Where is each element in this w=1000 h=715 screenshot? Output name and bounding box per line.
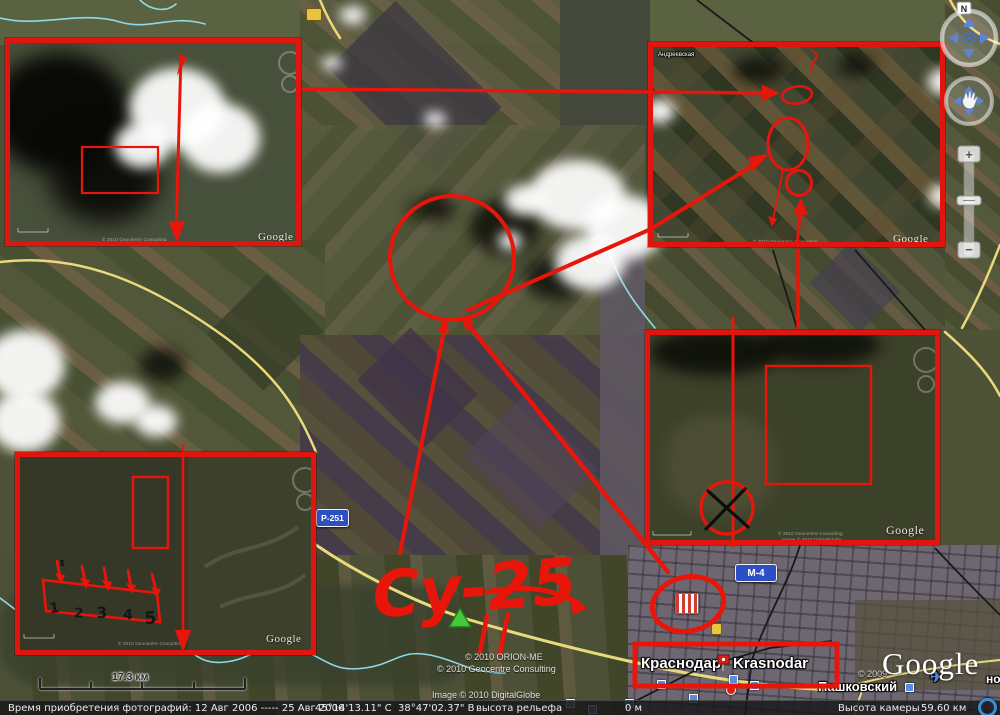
copyright-orion: © 2010 ORION-ME — [465, 652, 543, 662]
red-dot-placemark[interactable] — [726, 685, 736, 695]
city-label-ru: Краснодар — [641, 655, 721, 672]
google-watermark: Google — [882, 646, 979, 682]
airport-icon[interactable] — [675, 593, 699, 614]
copyright-digitalglobe: Image © 2010 DigitalGlobe — [432, 690, 540, 700]
inset-middle-right: Google © 2010 Geocentre Consulting Image… — [645, 330, 940, 545]
inset-copyright: © 2010 Geocentre Consulting — [102, 237, 167, 242]
longitude-value: 38°47'02.37" В — [398, 703, 474, 714]
placemark-icon[interactable] — [657, 680, 666, 689]
inset-copyright: Image © 2010 DigitalGlobe — [782, 537, 841, 542]
zoom-in-label: + — [965, 147, 973, 162]
inset-copyright: © 2010 Geocentre Consulting — [118, 641, 183, 646]
yellow-poi-icon[interactable] — [711, 623, 722, 635]
inset-google-watermark: Google — [893, 233, 928, 245]
google-earth-viewport[interactable]: Р-251 М-4 Краснодар Krasnodar Пашковский… — [0, 0, 1000, 715]
inset-copyright: © 2010 Geocentre Consulting — [778, 531, 843, 536]
navigation-controls[interactable]: + − N — [940, 0, 1000, 270]
road-shield-small — [306, 8, 322, 21]
inset-google-watermark: Google — [886, 523, 924, 538]
placemark-icon[interactable] — [905, 683, 914, 692]
inset-copyright: © 2010 Geocentre Consulting — [753, 239, 818, 244]
latitude-value: 45°14'13.11" С — [315, 703, 392, 714]
inset-bottom-left: Google © 2010 Geocentre Consulting — [15, 452, 316, 655]
scale-bar — [30, 664, 290, 694]
camera-altitude-value: 59.60 км — [921, 703, 966, 714]
inset-top-left: Google © 2010 Geocentre Consulting — [5, 38, 301, 246]
placemark-icon[interactable] — [729, 675, 738, 684]
placemark-icon[interactable] — [750, 681, 759, 690]
road-shield-p251: Р-251 — [316, 509, 349, 527]
copyright-geocentre: © 2010 Geocentre Consulting — [437, 664, 556, 674]
road-shield-m4: М-4 — [735, 564, 777, 582]
status-bar: Время приобретения фотографий: 12 Авг 20… — [0, 700, 1000, 715]
clipped-map-label: но — [986, 672, 1000, 686]
north-label: N — [961, 4, 968, 14]
eye-icon — [967, 36, 971, 40]
inset-top-right: Андреевская Google © 2010 Geocentre Cons… — [648, 42, 945, 247]
inset-village-label: Андреевская — [658, 52, 694, 58]
zoom-out-label: − — [965, 242, 973, 257]
camera-altitude-label: Высота камеры — [838, 703, 920, 714]
imagery-date: Время приобретения фотографий: 12 Авг 20… — [8, 703, 344, 714]
elevation-value: 0 м — [625, 703, 642, 714]
elevation-label: высота рельефа — [476, 703, 562, 714]
inset-google-watermark: Google — [266, 633, 301, 645]
streetview-control-icon[interactable] — [978, 698, 997, 715]
city-label-en: Krasnodar — [733, 655, 808, 672]
inset-google-watermark: Google — [258, 231, 293, 243]
